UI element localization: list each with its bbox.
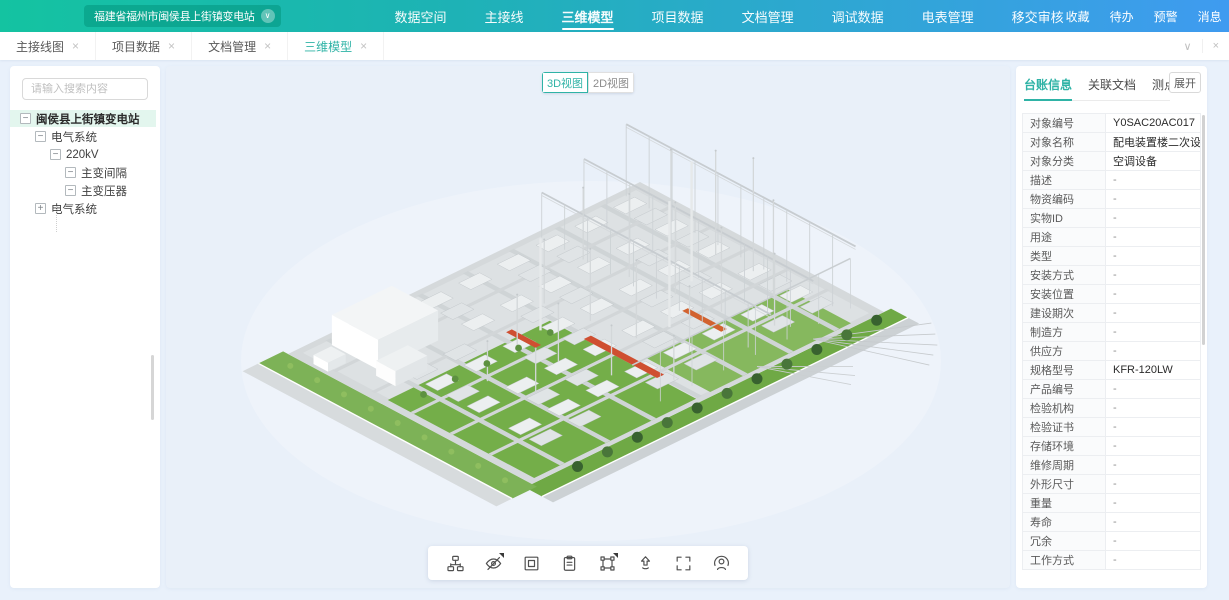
field-value: -	[1106, 418, 1200, 436]
substation-3d-render[interactable]	[166, 66, 1010, 588]
tab-1[interactable]: 主接线图×	[0, 32, 96, 60]
ledger-row: 寿命-	[1023, 513, 1200, 532]
tab-label: 项目数据	[112, 38, 160, 55]
tree-search	[22, 78, 148, 100]
field-value: -	[1106, 266, 1200, 284]
field-label: 对象分类	[1023, 152, 1106, 170]
field-label: 外形尺寸	[1023, 475, 1106, 493]
field-label: 产品编号	[1023, 380, 1106, 398]
field-label: 安装方式	[1023, 266, 1106, 284]
field-value: -	[1106, 190, 1200, 208]
nav-item-1[interactable]: 数据空间	[393, 1, 449, 31]
ledger-row: 实物ID-	[1023, 209, 1200, 228]
field-label: 检验证书	[1023, 418, 1106, 436]
ledger-row: 冗余-	[1023, 532, 1200, 551]
field-value: -	[1106, 247, 1200, 265]
tab-close-icon[interactable]: ×	[264, 39, 271, 53]
model-tree: −闽侯县上街镇变电站−电气系统−220kV−主变间隔−主变压器+电气系统	[10, 110, 160, 217]
ledger-row: 检验机构-	[1023, 399, 1200, 418]
view-mode-toggle: 3D视图2D视图	[542, 72, 634, 93]
nav-item-5[interactable]: 文档管理	[740, 1, 796, 31]
tab-2[interactable]: 项目数据×	[96, 32, 192, 60]
quick-link-4[interactable]: 消息	[1198, 8, 1222, 25]
tab-close-icon[interactable]: ×	[168, 39, 175, 53]
asset-panel-tabs: 台账信息关联文档测点	[1024, 76, 1170, 101]
field-label: 检验机构	[1023, 399, 1106, 417]
collapse-icon[interactable]: −	[20, 113, 31, 124]
scene-toolbar	[428, 546, 748, 580]
model-tree-sidebar: −闽侯县上街镇变电站−电气系统−220kV−主变间隔−主变压器+电气系统	[10, 66, 160, 588]
field-value: -	[1106, 475, 1200, 493]
nav-item-7[interactable]: 电表管理	[920, 1, 976, 31]
panel-tab-1[interactable]: 台账信息	[1024, 76, 1072, 93]
app-header: 福建省福州市闽侯县上街镇变电站 ∨ 数据空间主接线三维模型项目数据文档管理调试数…	[0, 0, 1229, 32]
ledger-row: 产品编号-	[1023, 380, 1200, 399]
quick-link-2[interactable]: 待办	[1110, 8, 1134, 25]
tabstrip-actions: ∨ ×	[1174, 39, 1229, 53]
collapse-icon[interactable]: −	[35, 131, 46, 142]
field-label: 存储环境	[1023, 437, 1106, 455]
field-value: -	[1106, 399, 1200, 417]
ledger-row: 重量-	[1023, 494, 1200, 513]
tree-node-label: 电气系统	[51, 201, 97, 217]
nav-item-8[interactable]: 移交审核	[1010, 1, 1066, 31]
nav-item-2[interactable]: 主接线	[483, 1, 526, 31]
tree-node-label: 闽侯县上街镇变电站	[36, 111, 140, 127]
tree-node-5[interactable]: −主变压器	[10, 182, 156, 199]
fullscreen-icon[interactable]	[668, 549, 698, 577]
ledger-row: 物资编码-	[1023, 190, 1200, 209]
field-value: -	[1106, 304, 1200, 322]
ledger-row: 供应方-	[1023, 342, 1200, 361]
view-toggle-3d[interactable]: 3D视图	[542, 72, 588, 93]
panel-tab-2[interactable]: 关联文档	[1088, 76, 1136, 93]
field-label: 冗余	[1023, 532, 1106, 550]
tab-3[interactable]: 文档管理×	[192, 32, 288, 60]
quick-link-1[interactable]: 收藏	[1066, 8, 1090, 25]
app-root: 福建省福州市闽侯县上街镇变电站 ∨ 数据空间主接线三维模型项目数据文档管理调试数…	[0, 0, 1229, 600]
ledger-row: 建设期次-	[1023, 304, 1200, 323]
field-value: -	[1106, 513, 1200, 531]
field-value: -	[1106, 551, 1200, 569]
field-label: 规格型号	[1023, 361, 1106, 379]
field-label: 供应方	[1023, 342, 1106, 360]
tree-node-1[interactable]: −闽侯县上街镇变电站	[10, 110, 156, 127]
open-tabs: 主接线图×项目数据×文档管理×三维模型×	[0, 32, 384, 60]
field-value: -	[1106, 171, 1200, 189]
field-value: 配电装置楼二次设备室柜式空...	[1106, 133, 1200, 151]
ledger-row: 外形尺寸-	[1023, 475, 1200, 494]
tab-4[interactable]: 三维模型×	[288, 32, 384, 60]
field-label: 对象编号	[1023, 114, 1106, 132]
box-select-icon[interactable]	[516, 549, 546, 577]
ledger-row: 用途-	[1023, 228, 1200, 247]
field-label: 用途	[1023, 228, 1106, 246]
ledger-row: 规格型号KFR-120LW	[1023, 361, 1200, 380]
expand-button[interactable]: 展开	[1169, 72, 1201, 93]
asset-panel-header: 台账信息关联文档测点 展开	[1016, 66, 1207, 101]
field-value: -	[1106, 209, 1200, 227]
field-label: 实物ID	[1023, 209, 1106, 227]
tree-node-3[interactable]: −220kV	[10, 146, 156, 163]
station-selector-label: 福建省福州市闽侯县上街镇变电站	[94, 8, 255, 24]
tab-close-icon[interactable]: ×	[72, 39, 79, 53]
ledger-row: 对象分类空调设备	[1023, 152, 1200, 171]
transform-icon[interactable]	[592, 549, 622, 577]
field-label: 寿命	[1023, 513, 1106, 531]
field-label: 描述	[1023, 171, 1106, 189]
tree-node-label: 220kV	[66, 149, 99, 161]
ledger-row: 存储环境-	[1023, 437, 1200, 456]
quick-links: 收藏待办预警消息	[1066, 8, 1222, 25]
field-value: -	[1106, 437, 1200, 455]
search-input[interactable]	[31, 83, 139, 95]
ledger-table: 对象编号Y0SAC20AC017对象名称配电装置楼二次设备室柜式空...对象分类…	[1022, 113, 1201, 570]
chevron-down-icon: ∨	[261, 9, 275, 23]
tabs-dropdown-icon[interactable]: ∨	[1174, 39, 1202, 53]
tab-label: 主接线图	[16, 38, 64, 55]
quick-link-3[interactable]: 预警	[1154, 8, 1178, 25]
tree-node-6[interactable]: +电气系统	[10, 200, 156, 217]
asset-info-panel: 台账信息关联文档测点 展开 对象编号Y0SAC20AC017对象名称配电装置楼二…	[1016, 66, 1207, 588]
close-all-tabs-icon[interactable]: ×	[1202, 39, 1229, 53]
field-label: 工作方式	[1023, 551, 1106, 569]
field-label: 维修周期	[1023, 456, 1106, 474]
arrow-up-icon[interactable]	[630, 549, 660, 577]
collapse-icon[interactable]: −	[50, 149, 61, 160]
field-value: -	[1106, 532, 1200, 550]
ledger-row: 安装方式-	[1023, 266, 1200, 285]
field-value: Y0SAC20AC017	[1106, 114, 1200, 132]
field-value: -	[1106, 494, 1200, 512]
ledger-row: 描述-	[1023, 171, 1200, 190]
tree-node-label: 主变间隔	[81, 165, 127, 181]
tab-close-icon[interactable]: ×	[360, 39, 367, 53]
ledger-row: 安装位置-	[1023, 285, 1200, 304]
view-toggle-2d[interactable]: 2D视图	[588, 72, 634, 93]
field-label: 对象名称	[1023, 133, 1106, 151]
field-value: -	[1106, 323, 1200, 341]
tree-node-4[interactable]: −主变间隔	[10, 164, 156, 181]
tree-node-label: 电气系统	[51, 129, 97, 145]
collapse-icon[interactable]: −	[65, 185, 76, 196]
tree-node-2[interactable]: −电气系统	[10, 128, 156, 145]
field-label: 物资编码	[1023, 190, 1106, 208]
collapse-icon[interactable]: −	[65, 167, 76, 178]
field-value: -	[1106, 285, 1200, 303]
expand-icon[interactable]: +	[35, 203, 46, 214]
tree-node-label: 主变压器	[81, 183, 127, 199]
ledger-row: 维修周期-	[1023, 456, 1200, 475]
field-label: 建设期次	[1023, 304, 1106, 322]
panel-scrollbar[interactable]	[1202, 115, 1205, 345]
tab-label: 文档管理	[208, 38, 256, 55]
field-value: -	[1106, 456, 1200, 474]
main-nav: 数据空间主接线三维模型项目数据文档管理调试数据电表管理移交审核	[393, 1, 1066, 31]
nav-item-4[interactable]: 项目数据	[650, 1, 706, 31]
sidebar-scrollbar[interactable]	[151, 355, 154, 420]
tab-label: 三维模型	[304, 38, 352, 55]
person-view-icon[interactable]	[706, 549, 736, 577]
ledger-row: 类型-	[1023, 247, 1200, 266]
field-label: 类型	[1023, 247, 1106, 265]
tree-guide-line	[56, 206, 57, 232]
clipboard-icon[interactable]	[554, 549, 584, 577]
field-label: 安装位置	[1023, 285, 1106, 303]
hierarchy-icon[interactable]	[440, 549, 470, 577]
viewport-3d: 3D视图2D视图	[166, 66, 1010, 588]
eye-off-icon[interactable]	[478, 549, 508, 577]
tab-strip: 主接线图×项目数据×文档管理×三维模型× ∨ ×	[0, 32, 1229, 60]
field-value: -	[1106, 380, 1200, 398]
field-value: -	[1106, 342, 1200, 360]
station-selector[interactable]: 福建省福州市闽侯县上街镇变电站 ∨	[84, 5, 281, 27]
ledger-row: 对象名称配电装置楼二次设备室柜式空...	[1023, 133, 1200, 152]
field-value: KFR-120LW	[1106, 361, 1200, 379]
field-value: 空调设备	[1106, 152, 1200, 170]
nav-item-3[interactable]: 三维模型	[560, 1, 616, 31]
ledger-row: 制造方-	[1023, 323, 1200, 342]
field-label: 重量	[1023, 494, 1106, 512]
ledger-row: 工作方式-	[1023, 551, 1200, 570]
field-label: 制造方	[1023, 323, 1106, 341]
ledger-row: 对象编号Y0SAC20AC017	[1023, 114, 1200, 133]
ledger-row: 检验证书-	[1023, 418, 1200, 437]
nav-item-6[interactable]: 调试数据	[830, 1, 886, 31]
field-value: -	[1106, 228, 1200, 246]
